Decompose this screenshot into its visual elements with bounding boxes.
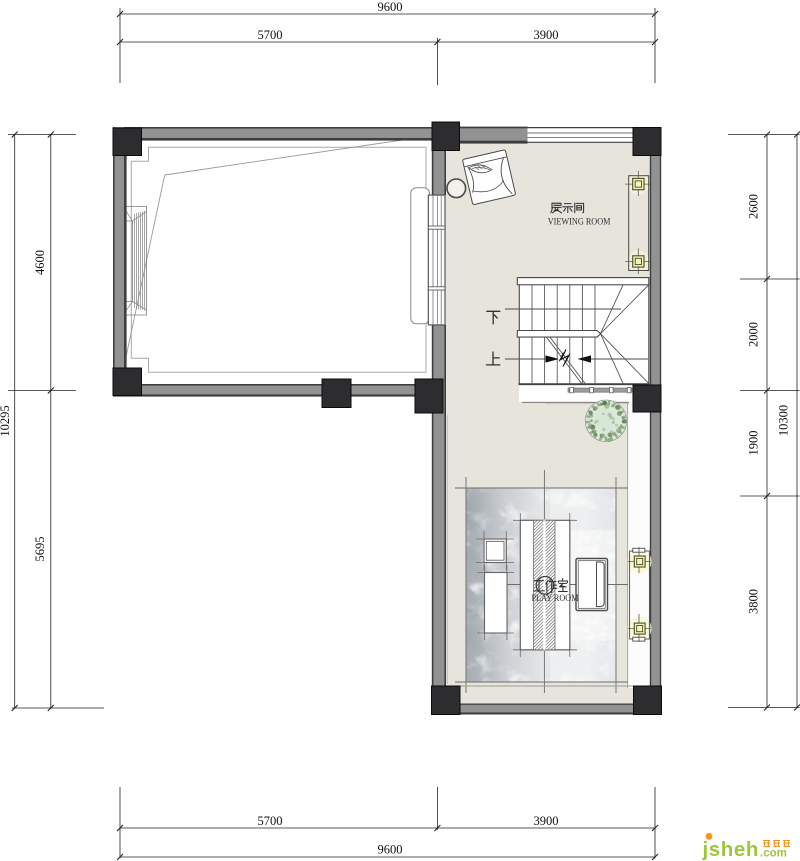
svg-text:2600: 2600 xyxy=(747,194,761,219)
svg-text:9600: 9600 xyxy=(378,843,403,857)
svg-text:5700: 5700 xyxy=(258,814,283,828)
svg-text:3800: 3800 xyxy=(747,589,761,614)
svg-text:.com: .com xyxy=(760,848,787,860)
svg-text:4600: 4600 xyxy=(33,250,47,275)
svg-text:3900: 3900 xyxy=(534,814,559,828)
svg-text:PLAY ROOM: PLAY ROOM xyxy=(532,594,579,604)
svg-text:9600: 9600 xyxy=(378,0,403,14)
svg-text:10295: 10295 xyxy=(0,405,12,436)
svg-text:2000: 2000 xyxy=(747,322,761,347)
svg-text:5695: 5695 xyxy=(33,537,47,562)
svg-text:10300: 10300 xyxy=(777,405,791,436)
svg-text:3900: 3900 xyxy=(534,28,559,42)
svg-text:5700: 5700 xyxy=(258,28,283,42)
svg-text:jsheh: jsheh xyxy=(702,838,760,861)
svg-text:1900: 1900 xyxy=(747,431,761,456)
svg-text:VIEWING ROOM: VIEWING ROOM xyxy=(548,218,611,228)
